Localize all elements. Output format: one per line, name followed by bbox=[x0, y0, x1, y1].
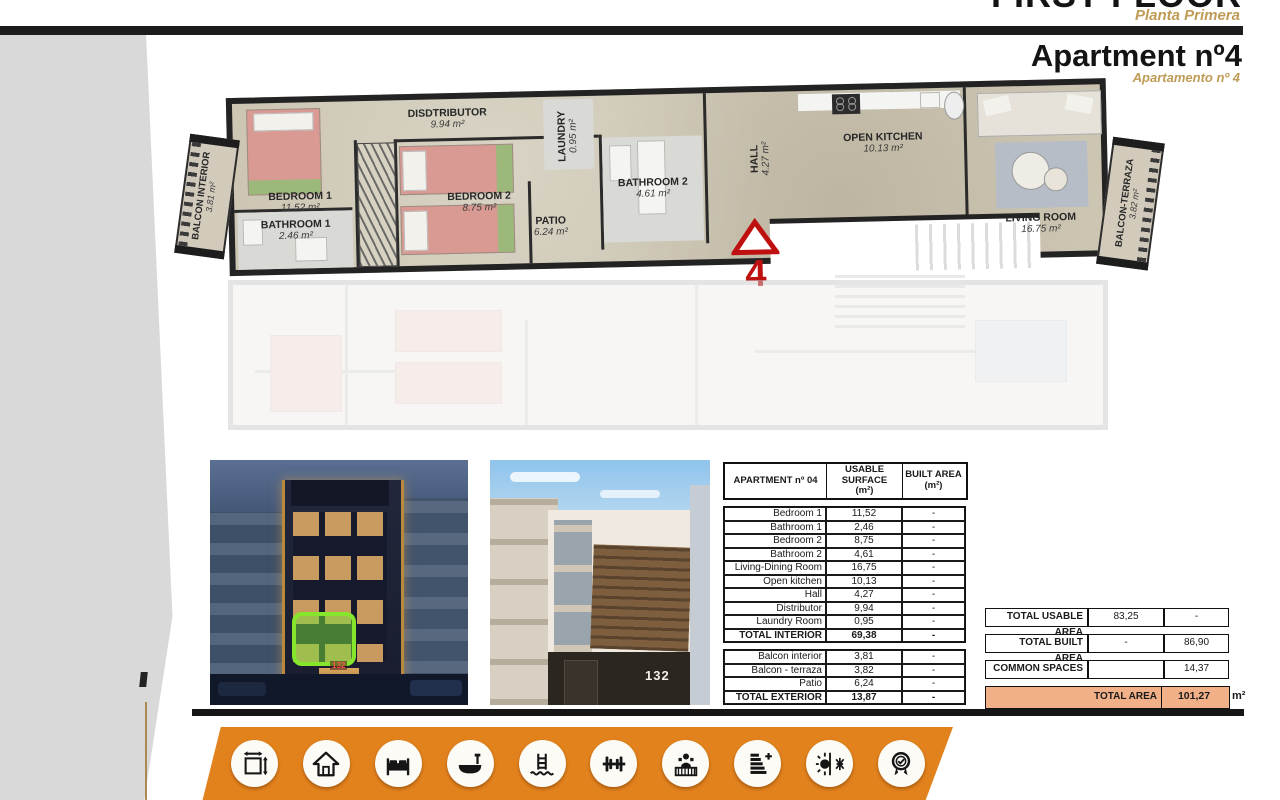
floor-subtitle: Planta Primera bbox=[1135, 7, 1240, 24]
table-cell: Balcon interior bbox=[724, 650, 826, 664]
highlighted-unit-box bbox=[292, 612, 356, 666]
gym-icon bbox=[590, 740, 637, 787]
table-row: Balcon interior3,81- bbox=[724, 650, 965, 664]
rug bbox=[995, 141, 1088, 209]
gold-accent-line bbox=[145, 702, 147, 800]
header-built-area: BUILT AREA (m²) bbox=[903, 464, 964, 498]
climate-icon bbox=[806, 740, 853, 787]
summary-row-usable: TOTAL USABLE AREA 83,25 - bbox=[985, 608, 1229, 627]
building-sliver bbox=[690, 485, 710, 705]
table-row: TOTAL INTERIOR69,38- bbox=[724, 629, 965, 643]
dimensions-icon bbox=[231, 740, 278, 787]
table-cell: - bbox=[902, 588, 965, 602]
stove bbox=[832, 94, 860, 115]
table-row: Balcon - terraza3,82- bbox=[724, 664, 965, 678]
table-row: TOTAL EXTERIOR13,87- bbox=[724, 691, 965, 705]
table-cell: 0,95 bbox=[826, 615, 902, 629]
table-cell: 3,81 bbox=[826, 650, 902, 664]
footer-divider-bar bbox=[192, 709, 1244, 716]
total-area-value: 101,27 bbox=[1162, 687, 1226, 708]
area-table-header: APARTMENT nº 04 USABLE SURFACE (m²) BUIL… bbox=[723, 462, 968, 500]
room-label-living: LIVING ROOM 16.75 m² bbox=[977, 210, 1106, 236]
night-render-photo: 132 bbox=[210, 460, 468, 705]
room-label-bathroom2: BATHROOM 2 4.61 m² bbox=[602, 175, 705, 201]
table-row: Bathroom 24,61- bbox=[724, 548, 965, 562]
table-cell: 8,75 bbox=[826, 534, 902, 548]
summary-row-common: COMMON SPACES 14,37 bbox=[985, 660, 1229, 679]
brochure-page: { "header": { "floor_title": "FIRST FLOO… bbox=[0, 0, 1280, 800]
total-area-unit: m² bbox=[1232, 690, 1245, 702]
table-cell: Laundry Room bbox=[724, 615, 826, 629]
table-cell: Hall bbox=[724, 588, 826, 602]
double-bed bbox=[246, 108, 322, 196]
room-label-kitchen: OPEN KITCHEN 10.13 m² bbox=[803, 129, 963, 156]
table-cell: - bbox=[902, 548, 965, 562]
table-cell: - bbox=[902, 561, 965, 575]
summary-row-built: TOTAL BUILT AREA - 86,90 bbox=[985, 634, 1229, 653]
table-cell: Distributor bbox=[724, 602, 826, 616]
table-cell: 69,38 bbox=[826, 629, 902, 643]
table-row: Open kitchen10,13- bbox=[724, 575, 965, 589]
toilet bbox=[609, 145, 632, 181]
table-cell: 4,27 bbox=[826, 588, 902, 602]
room-label-laundry: LAUNDRY 0.95 m² bbox=[555, 101, 580, 172]
table-cell: 2,46 bbox=[826, 521, 902, 535]
header-apartment: APARTMENT nº 04 bbox=[725, 464, 827, 498]
room-label-distributor: DISDTRIBUTOR 9.94 m² bbox=[367, 105, 527, 132]
street bbox=[210, 674, 468, 705]
floor-plan-body: BEDROOM 1 11.52 m² BATHROOM 1 2.46 m² DI… bbox=[226, 78, 1110, 276]
header-divider-bar bbox=[0, 26, 1243, 35]
table-row: Laundry Room0,95- bbox=[724, 615, 965, 629]
wall bbox=[703, 93, 709, 243]
subject-building-day bbox=[548, 510, 695, 705]
table-cell: - bbox=[902, 507, 965, 521]
table-cell: 13,87 bbox=[826, 691, 902, 705]
table-cell: - bbox=[902, 629, 965, 643]
room-label-hall: HALL 4.27 m² bbox=[748, 124, 773, 195]
summary-row-total: TOTAL AREA 101,27 bbox=[985, 686, 1230, 709]
table-cell: Open kitchen bbox=[724, 575, 826, 589]
table-cell: - bbox=[902, 534, 965, 548]
night-building-number: 132 bbox=[330, 661, 347, 670]
kitchen-sink bbox=[920, 92, 940, 108]
table-cell: Living-Dining Room bbox=[724, 561, 826, 575]
header-usable-surface: USABLE SURFACE (m²) bbox=[827, 464, 903, 498]
bedrooms-icon bbox=[375, 740, 422, 787]
table-cell: 10,13 bbox=[826, 575, 902, 589]
total-area-label: TOTAL AREA bbox=[986, 687, 1162, 708]
table-cell: - bbox=[902, 602, 965, 616]
amenity-bar bbox=[195, 727, 953, 800]
table-row: Bedroom 111,52- bbox=[724, 507, 965, 521]
interior-areas-table: Bedroom 111,52-Bathroom 12,46-Bedroom 28… bbox=[723, 506, 966, 643]
pool-icon bbox=[519, 740, 566, 787]
table-cell: Patio bbox=[724, 677, 826, 691]
table-cell: Bathroom 2 bbox=[724, 548, 826, 562]
table-row: Distributor9,94- bbox=[724, 602, 965, 616]
table-cell: - bbox=[902, 615, 965, 629]
single-bed bbox=[399, 144, 514, 196]
table-cell: Bedroom 1 bbox=[724, 507, 826, 521]
table-row: Living-Dining Room16,75- bbox=[724, 561, 965, 575]
table-row: Hall4,27- bbox=[724, 588, 965, 602]
table-cell: - bbox=[902, 677, 965, 691]
table-cell: 4,61 bbox=[826, 548, 902, 562]
water-heater bbox=[944, 91, 965, 119]
table-cell: Bedroom 2 bbox=[724, 534, 826, 548]
house-icon bbox=[303, 740, 350, 787]
reception-icon bbox=[662, 740, 709, 787]
table-cell: 16,75 bbox=[826, 561, 902, 575]
room-label-bedroom2: BEDROOM 2 8.75 m² bbox=[419, 189, 540, 215]
day-render-photo: 132 bbox=[490, 460, 710, 705]
floor-plan: BEDROOM 1 11.52 m² BATHROOM 1 2.46 m² DI… bbox=[176, 69, 1171, 311]
table-cell: - bbox=[902, 691, 965, 705]
table-cell: Balcon - terraza bbox=[724, 664, 826, 678]
wardrobe-closet bbox=[357, 142, 398, 267]
ghost-floor-plan bbox=[195, 280, 1155, 455]
subject-building bbox=[282, 480, 404, 705]
table-cell: Bathroom 1 bbox=[724, 521, 826, 535]
room-label-patio: PATIO 6.24 m² bbox=[501, 214, 602, 240]
table-row: Bedroom 28,75- bbox=[724, 534, 965, 548]
table-row: Patio6,24- bbox=[724, 677, 965, 691]
table-cell: TOTAL INTERIOR bbox=[724, 629, 826, 643]
room-label-bedroom1: BEDROOM 1 11.52 m² bbox=[244, 189, 357, 215]
bathtub-icon bbox=[447, 740, 494, 787]
table-cell: - bbox=[902, 650, 965, 664]
table-cell: - bbox=[902, 575, 965, 589]
table-cell: 3,82 bbox=[826, 664, 902, 678]
day-building-number: 132 bbox=[645, 668, 670, 683]
energy-rating-icon bbox=[734, 740, 781, 787]
table-cell: TOTAL EXTERIOR bbox=[724, 691, 826, 705]
table-cell: 6,24 bbox=[826, 677, 902, 691]
table-row: Bathroom 12,46- bbox=[724, 521, 965, 535]
table-cell: 11,52 bbox=[826, 507, 902, 521]
entrance-triangle-icon bbox=[731, 218, 780, 257]
left-gray-band bbox=[0, 35, 176, 800]
sofa bbox=[977, 90, 1102, 137]
exterior-areas-table: Balcon interior3,81-Balcon - terraza3,82… bbox=[723, 649, 966, 705]
table-cell: - bbox=[902, 521, 965, 535]
table-cell: 9,94 bbox=[826, 602, 902, 616]
room-label-bathroom1: BATHROOM 1 2.46 m² bbox=[237, 217, 356, 243]
quality-badge-icon bbox=[878, 740, 925, 787]
table-cell: - bbox=[902, 664, 965, 678]
